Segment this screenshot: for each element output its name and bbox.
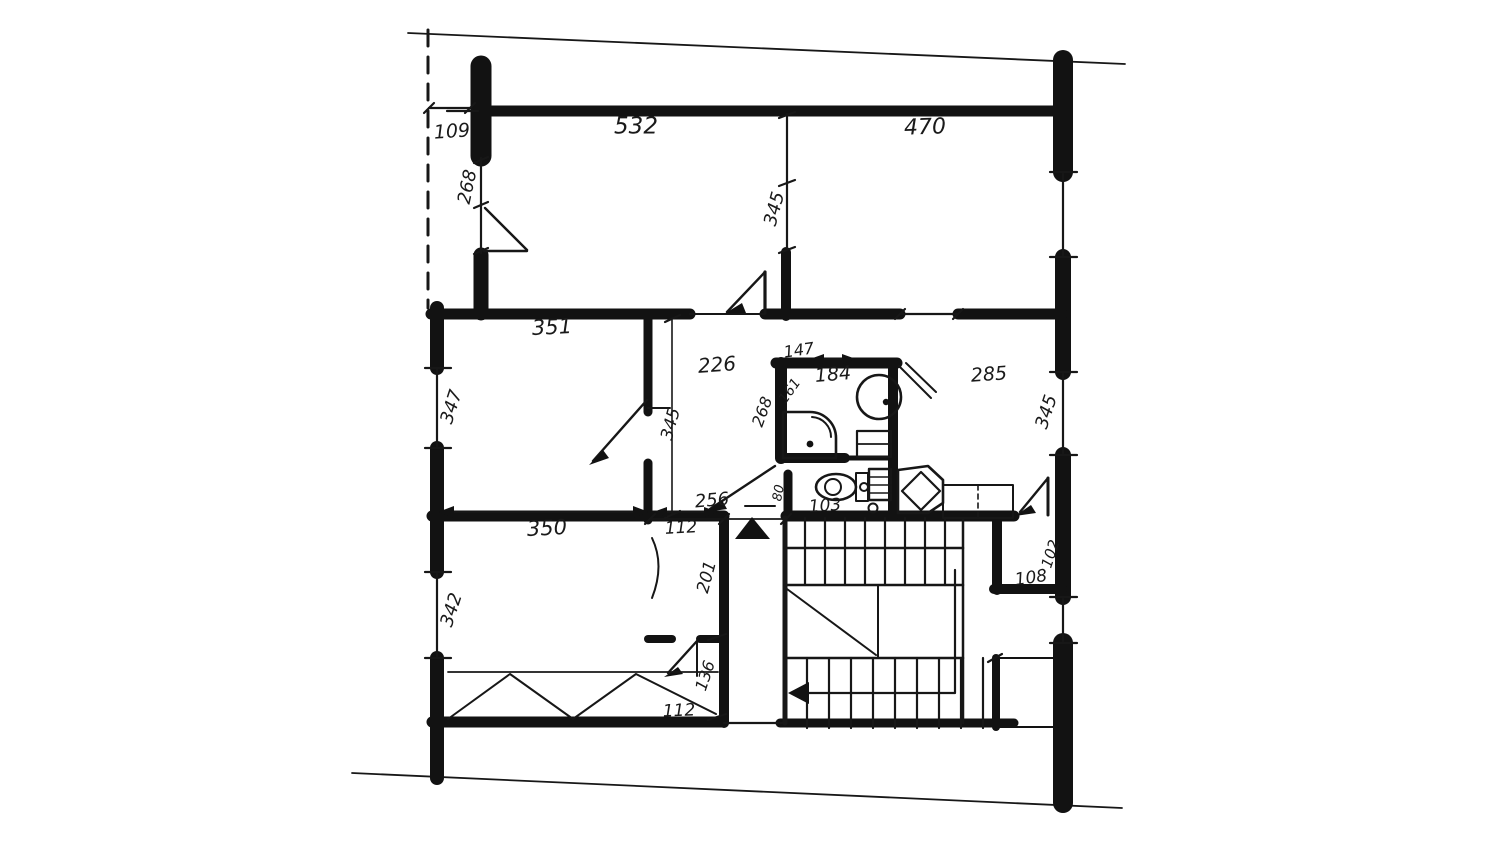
dim-label-109-0: 109 [433, 119, 471, 143]
door-closet-upper-arc [652, 538, 659, 598]
stair-direction-path [788, 570, 955, 704]
dim-label-80-18: 80 [770, 484, 788, 503]
dim-label-112-23: 112 [662, 700, 695, 721]
dim-label-268-3: 268 [454, 168, 482, 206]
dim-label-532-1: 532 [614, 114, 658, 140]
door-room285 [1015, 478, 1048, 516]
dim-label-184-10: 184 [814, 362, 852, 387]
dim-label-342-21: 342 [436, 590, 467, 629]
stair-treads-upper [805, 518, 945, 585]
dim-label-345-14: 345 [1031, 392, 1062, 431]
washing-machine [860, 469, 891, 513]
dim-label-345-8: 345 [657, 406, 685, 443]
dim-label-268-11: 268 [748, 394, 776, 429]
door-room532-corridor [724, 272, 765, 314]
stair-break-line [787, 589, 876, 655]
shower-stall [783, 412, 836, 458]
outer-walls [432, 60, 1063, 803]
stair-direction-arrow [788, 682, 809, 704]
dimension-labels-layer: 1095324702683453513472263451471842681612… [433, 114, 1063, 722]
scanned-floor-plan: 1095324702683453513472263451471842681612… [0, 0, 1500, 845]
dim-label-136-22: 136 [691, 658, 719, 693]
windows-and-openings [429, 108, 1063, 723]
dim-label-470-2: 470 [904, 114, 947, 140]
tick-group [424, 103, 1077, 720]
floor-plan-canvas: 1095324702683453513472263451471842681612… [0, 0, 1500, 845]
dim-label-256-16: 256 [694, 489, 730, 513]
dimension-ticks [424, 103, 1077, 720]
dim-label-345-4: 345 [760, 190, 789, 229]
property-line-bottom [352, 773, 1122, 808]
door-room351 [589, 400, 647, 465]
cistern-shelf [857, 431, 891, 457]
dim-label-347-6: 347 [436, 387, 467, 427]
dim-label-226-7: 226 [697, 351, 737, 378]
shower-drain [807, 441, 814, 448]
dim-label-112-17: 112 [664, 517, 697, 539]
dim-label-350-15: 350 [526, 515, 567, 541]
staircase [785, 518, 983, 728]
interior-walls [431, 252, 1062, 727]
corner-shelf-lines [899, 363, 936, 398]
dim-label-103-19: 103 [808, 495, 842, 517]
boundary-lines [352, 30, 1125, 808]
dim-label-285-13: 285 [970, 362, 1008, 386]
door-loggia [484, 208, 527, 251]
corner-basin [898, 466, 943, 513]
dim-label-201-20: 201 [693, 559, 721, 596]
door-arrow [589, 450, 609, 465]
dim-label-351-5: 351 [531, 314, 572, 340]
entrance-marker-triangle [735, 517, 770, 539]
property-line-top [408, 33, 1125, 64]
